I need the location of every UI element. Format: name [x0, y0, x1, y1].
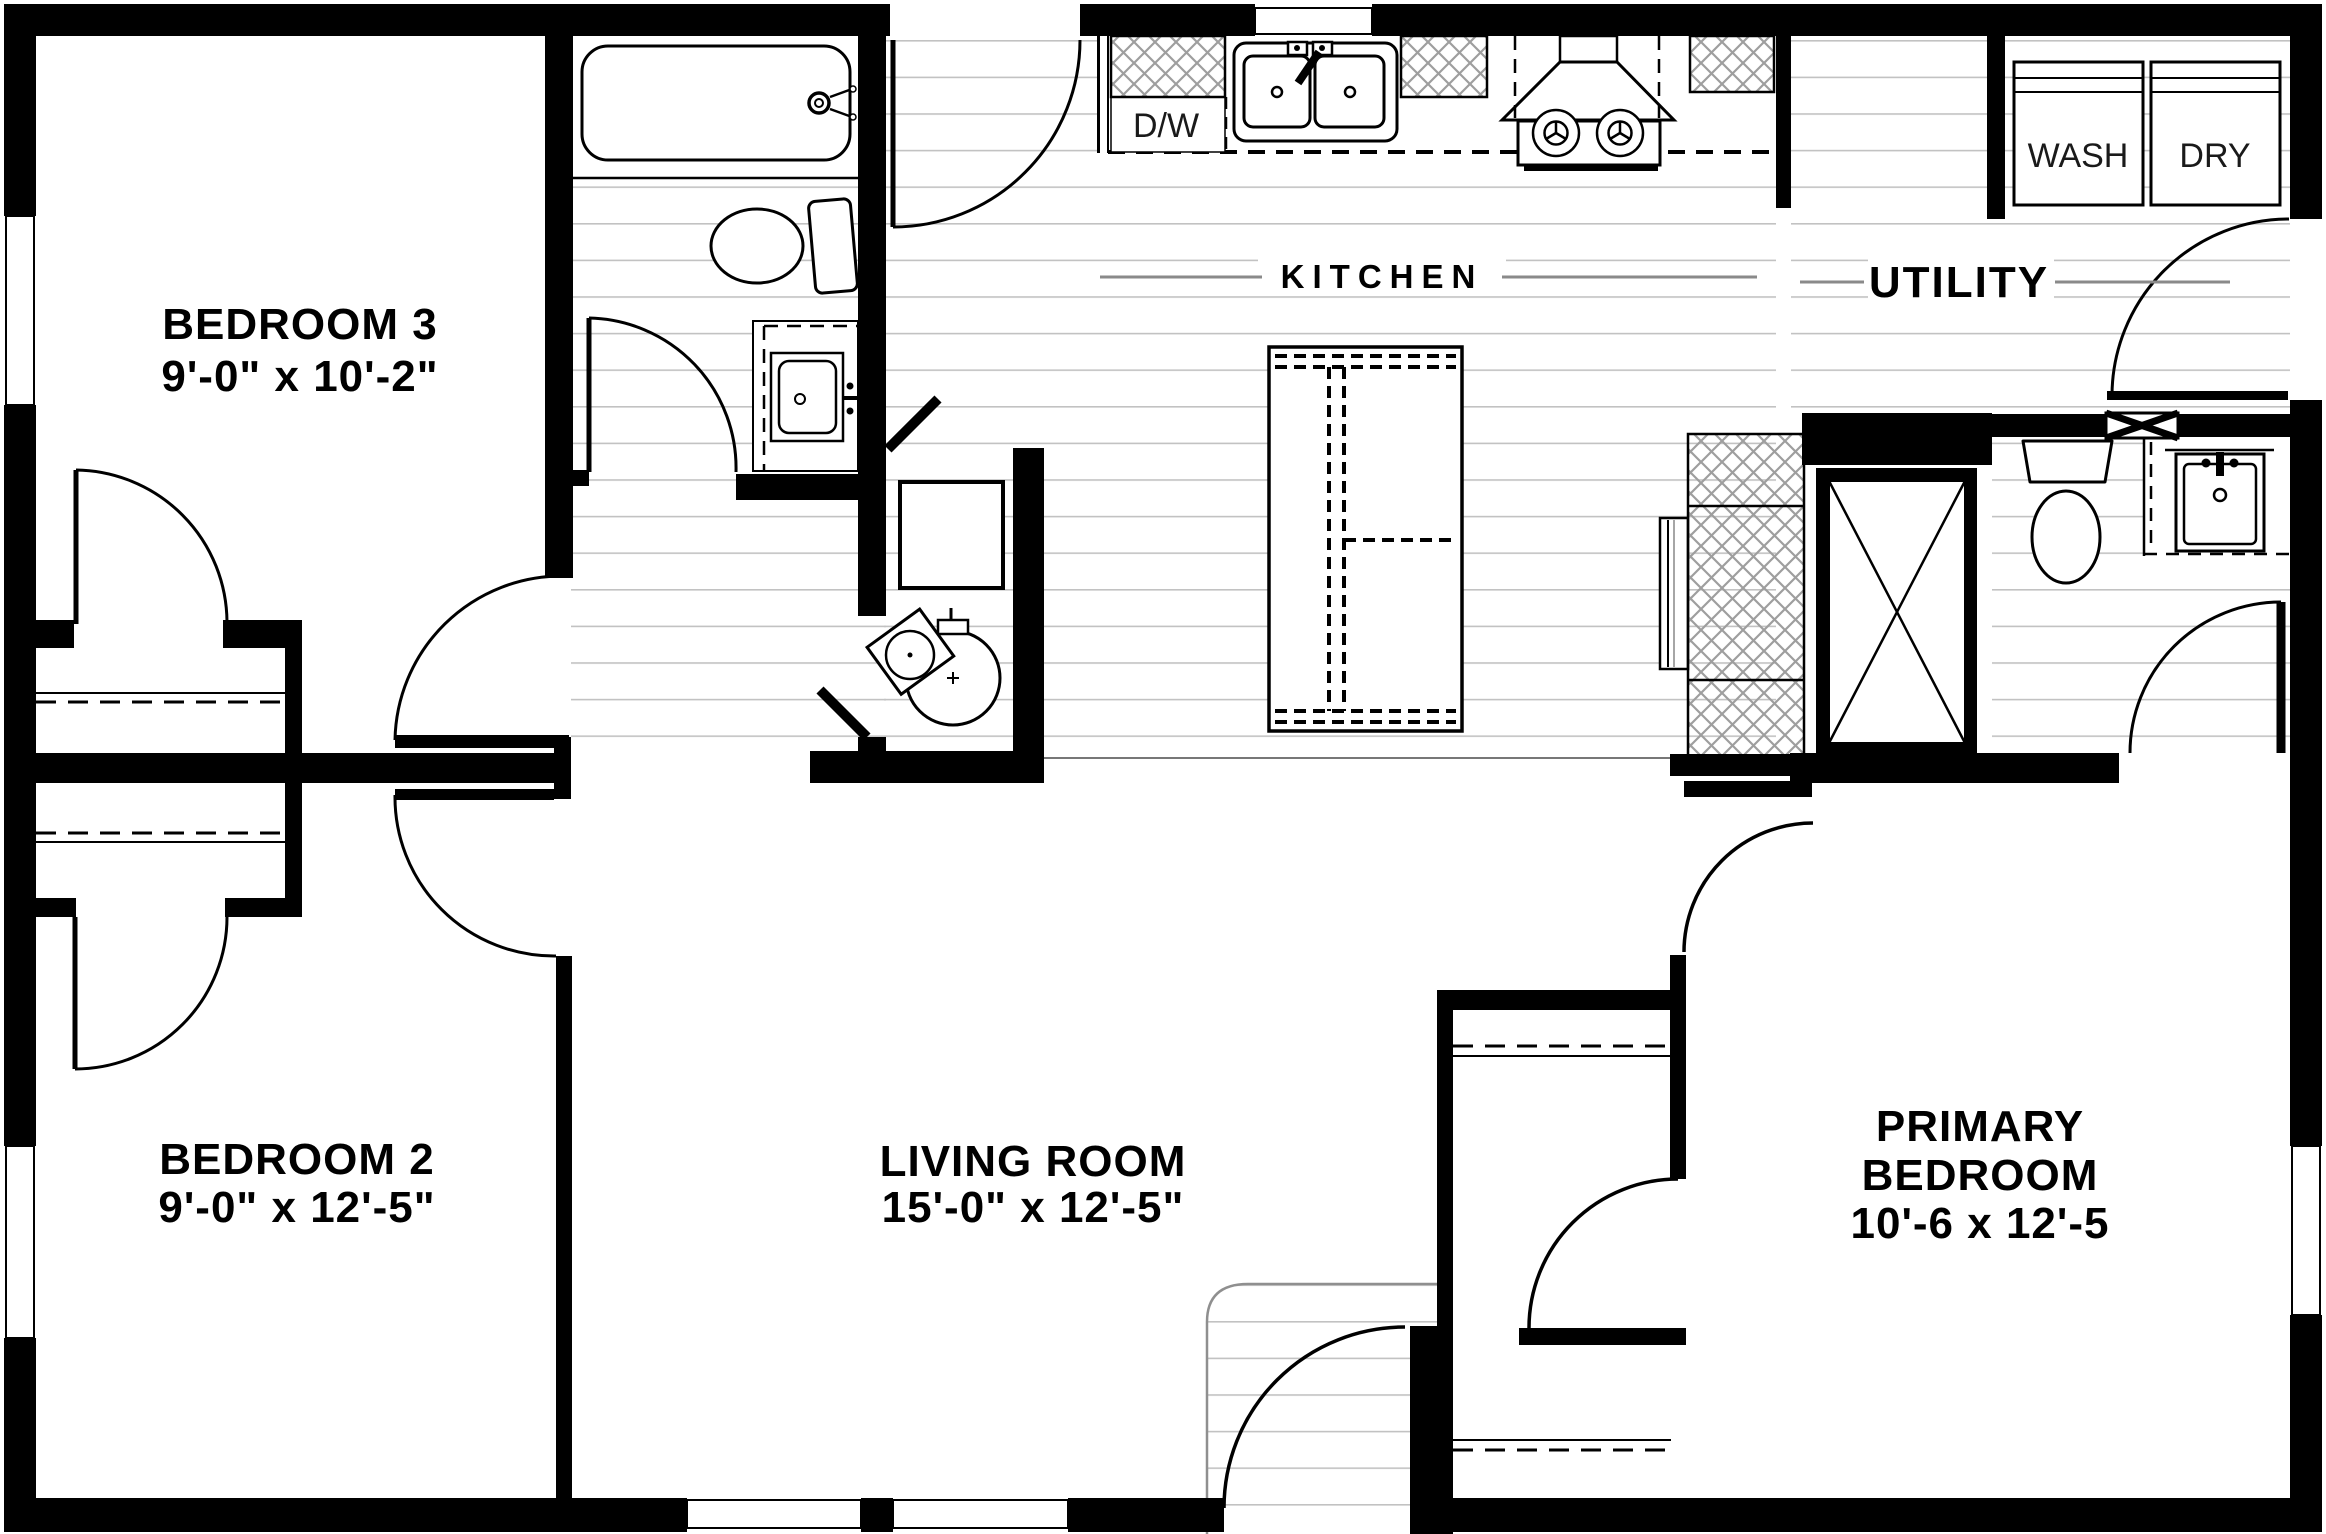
- svg-text:BEDROOM 2: BEDROOM 2: [159, 1135, 434, 1184]
- svg-text:9'-0" x 12'-5": 9'-0" x 12'-5": [158, 1183, 435, 1232]
- svg-text:DRY: DRY: [2179, 137, 2250, 175]
- svg-text:10'-6 x 12'-5: 10'-6 x 12'-5: [1851, 1199, 2110, 1248]
- svg-text:UTILITY: UTILITY: [1869, 258, 2049, 307]
- svg-text:BEDROOM 3: BEDROOM 3: [162, 300, 437, 349]
- svg-text:BEDROOM: BEDROOM: [1862, 1151, 2099, 1200]
- svg-text:9'-0" x 10'-2": 9'-0" x 10'-2": [161, 352, 438, 401]
- svg-text:KITCHEN: KITCHEN: [1281, 258, 1484, 295]
- svg-text:D/W: D/W: [1133, 107, 1199, 145]
- svg-text:15'-0" x 12'-5": 15'-0" x 12'-5": [882, 1183, 1185, 1232]
- svg-text:PRIMARY: PRIMARY: [1876, 1102, 2084, 1151]
- svg-text:WASH: WASH: [2028, 137, 2129, 175]
- svg-text:LIVING ROOM: LIVING ROOM: [880, 1137, 1187, 1186]
